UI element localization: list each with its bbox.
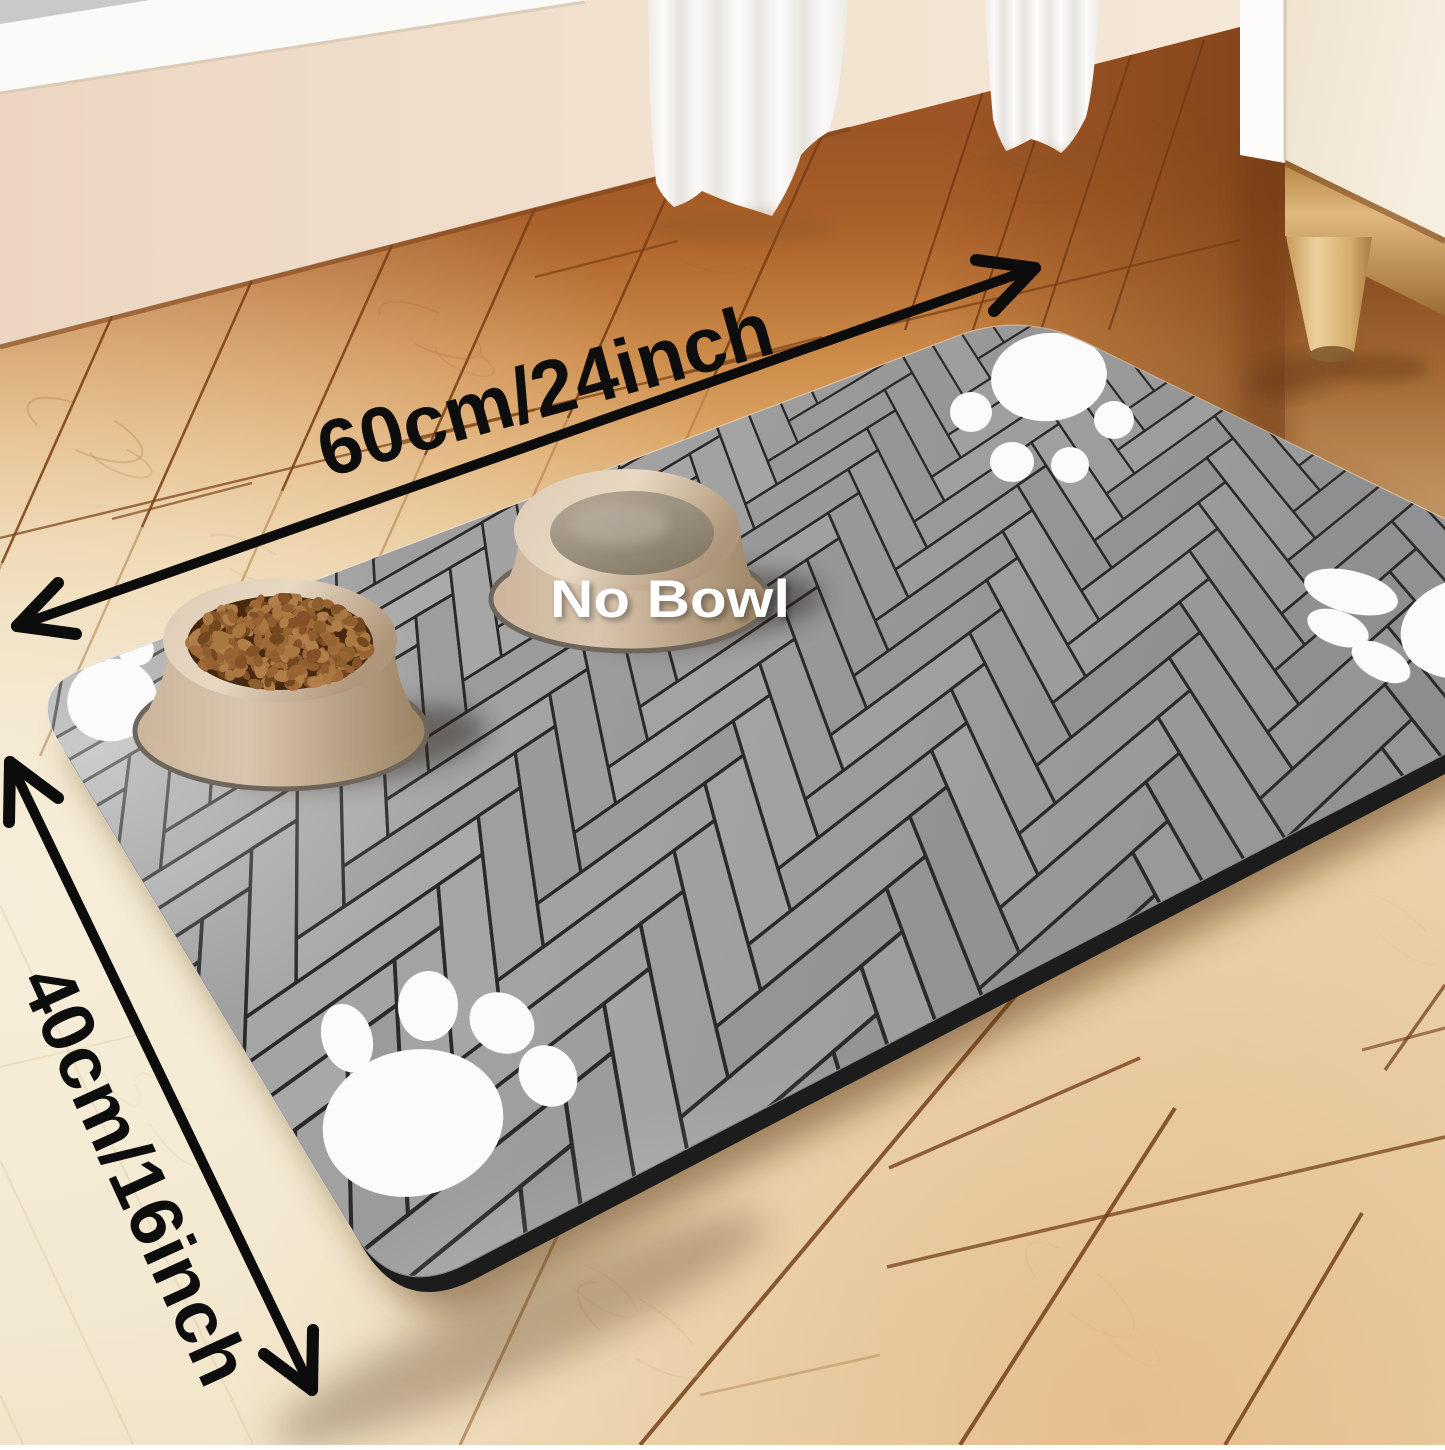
- svg-text:No Bowl: No Bowl: [550, 570, 790, 629]
